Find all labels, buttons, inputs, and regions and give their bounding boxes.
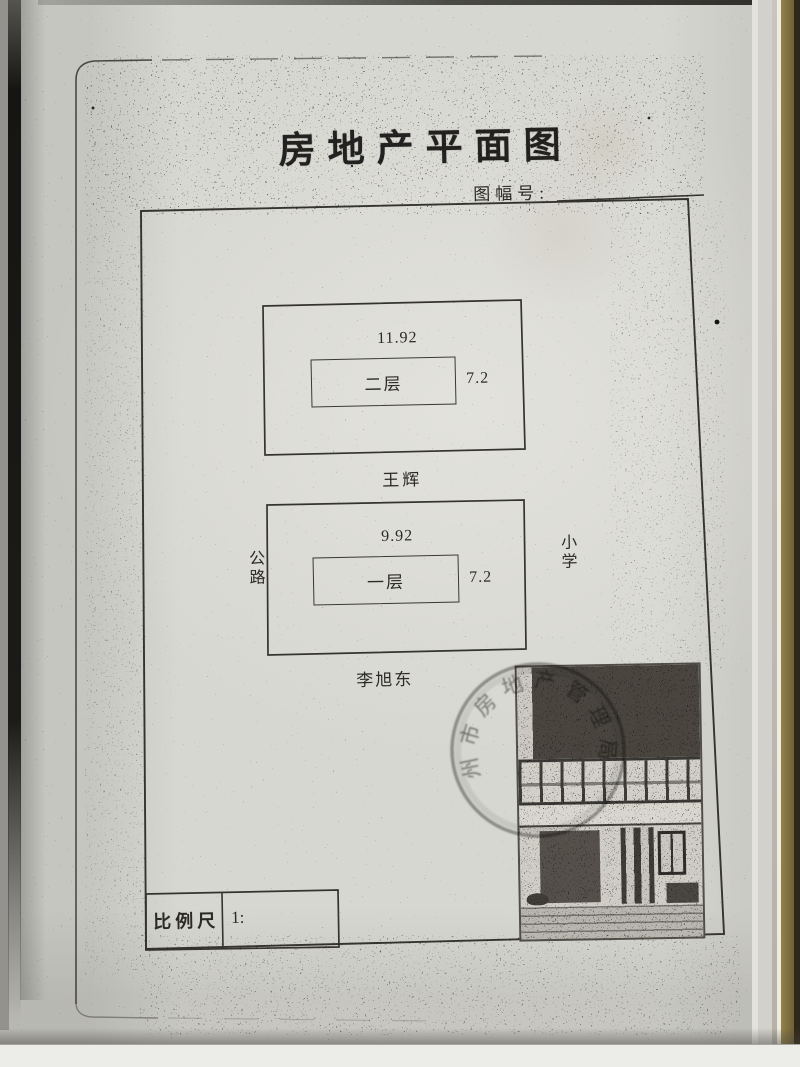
page-bottom-shadow [0,1028,800,1044]
copy-artifact-line [76,60,152,1004]
scanned-floor-plan-page: 房地产平面图 图幅号: 11.92 二层 7.2 王辉 9.92 一层 7.2 … [0,0,800,1067]
under-page-edge [758,0,772,1067]
left-adjacency-label: 公路 [242,550,267,588]
lower-floor-box: 一层 [313,554,460,605]
book-cover-edge [781,0,794,1067]
sheet-number-label: 图幅号: [473,178,549,205]
ink-speck [715,320,720,325]
upper-floor-box: 二层 [311,356,457,407]
official-stamp: 州市房地产管理局 [440,652,636,848]
image-right-edge [794,0,800,1067]
lower-adjacent-owner: 李旭东 [356,665,413,691]
page-title: 房地产平面图 [278,114,573,174]
right-adjacency-label: 小学 [554,534,579,572]
scale-ratio-prefix: 1: [231,908,245,928]
scale-box-divider [222,893,223,948]
stamp-arc-text: 州市房地产管理局 [450,662,622,781]
lower-length-dimension: 9.92 [381,527,413,546]
lower-floor-label: 一层 [367,567,406,593]
scale-label: 比例尺 [153,907,220,934]
page-top-edge [38,0,783,5]
spine-soft-shadow [20,0,46,1000]
upper-adjacent-owner: 王辉 [382,465,422,491]
book-spine-shadow [8,0,21,1020]
upper-floor-label: 二层 [364,369,403,395]
upper-length-dimension: 11.92 [377,329,418,348]
upper-depth-dimension: 7.2 [466,370,489,388]
table-surface [0,1044,800,1067]
lower-depth-dimension: 7.2 [469,569,492,587]
